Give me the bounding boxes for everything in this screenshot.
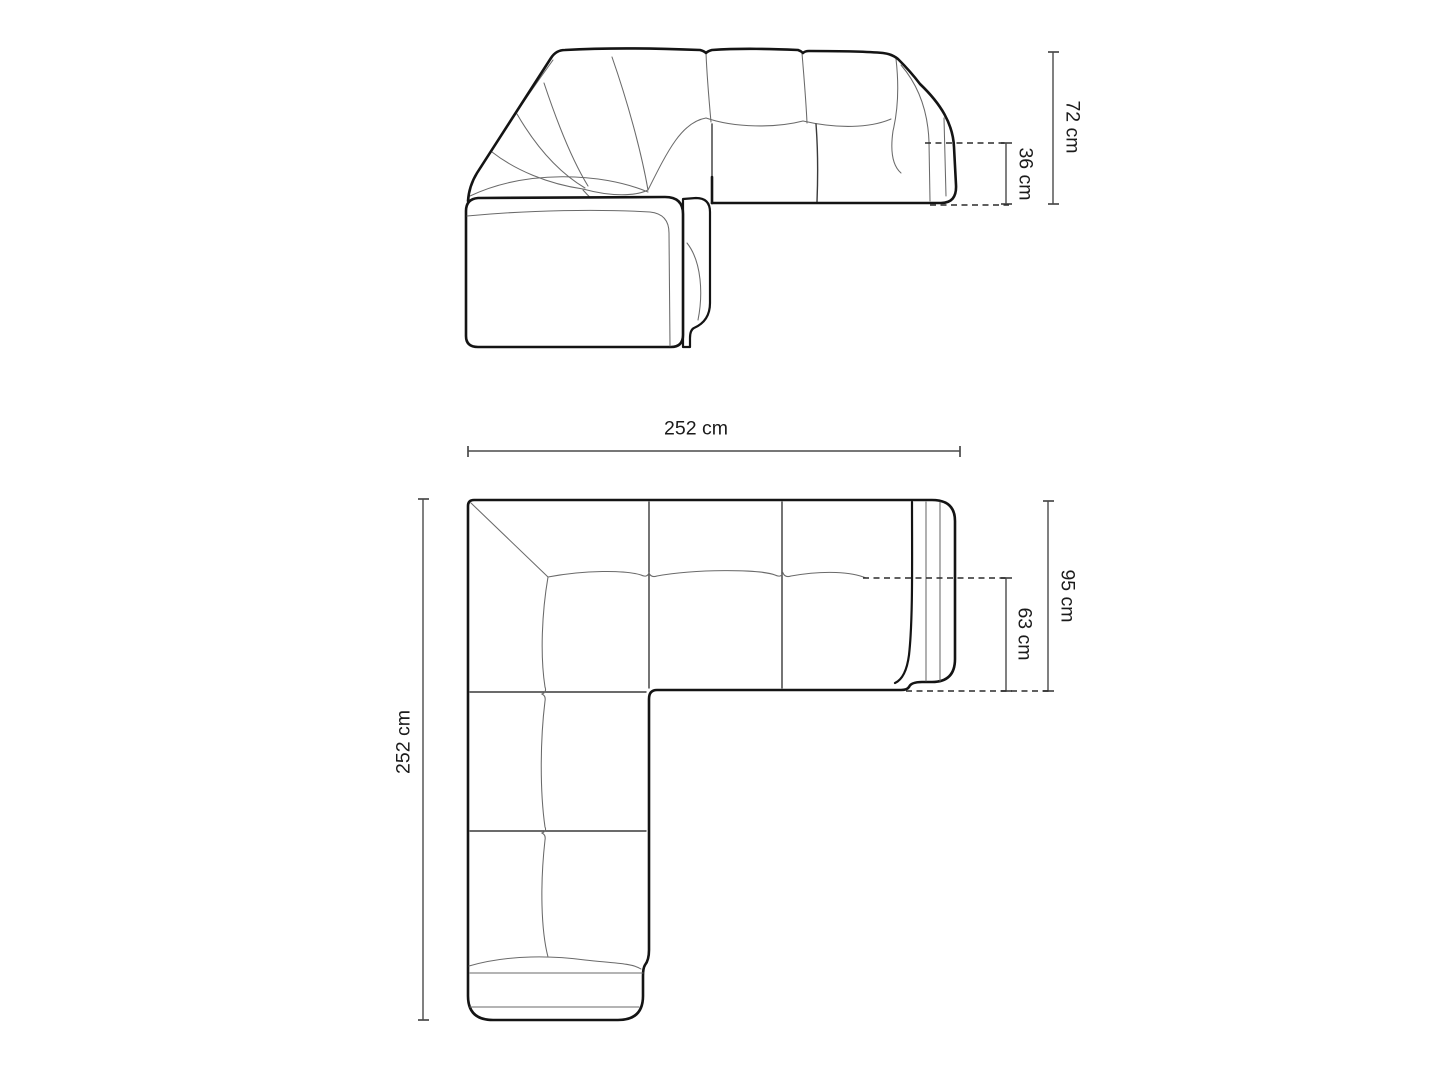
dim-label-total-height: 72 cm [1061, 100, 1084, 153]
dim-label-seat-height: 36 cm [1014, 147, 1037, 200]
dim-label-total-width: 252 cm [664, 418, 728, 441]
dim-label-total-depth: 95 cm [1056, 569, 1079, 622]
sofa-dimension-diagram: 72 cm 36 cm 252 cm 252 cm 95 cm 63 cm [0, 0, 1454, 1090]
dim-label-seat-depth: 63 cm [1013, 607, 1036, 660]
dim-label-total-length: 252 cm [393, 710, 416, 774]
top-view-drawing [468, 500, 955, 1020]
front-view-drawing [466, 49, 956, 348]
diagram-canvas [0, 0, 1454, 1090]
